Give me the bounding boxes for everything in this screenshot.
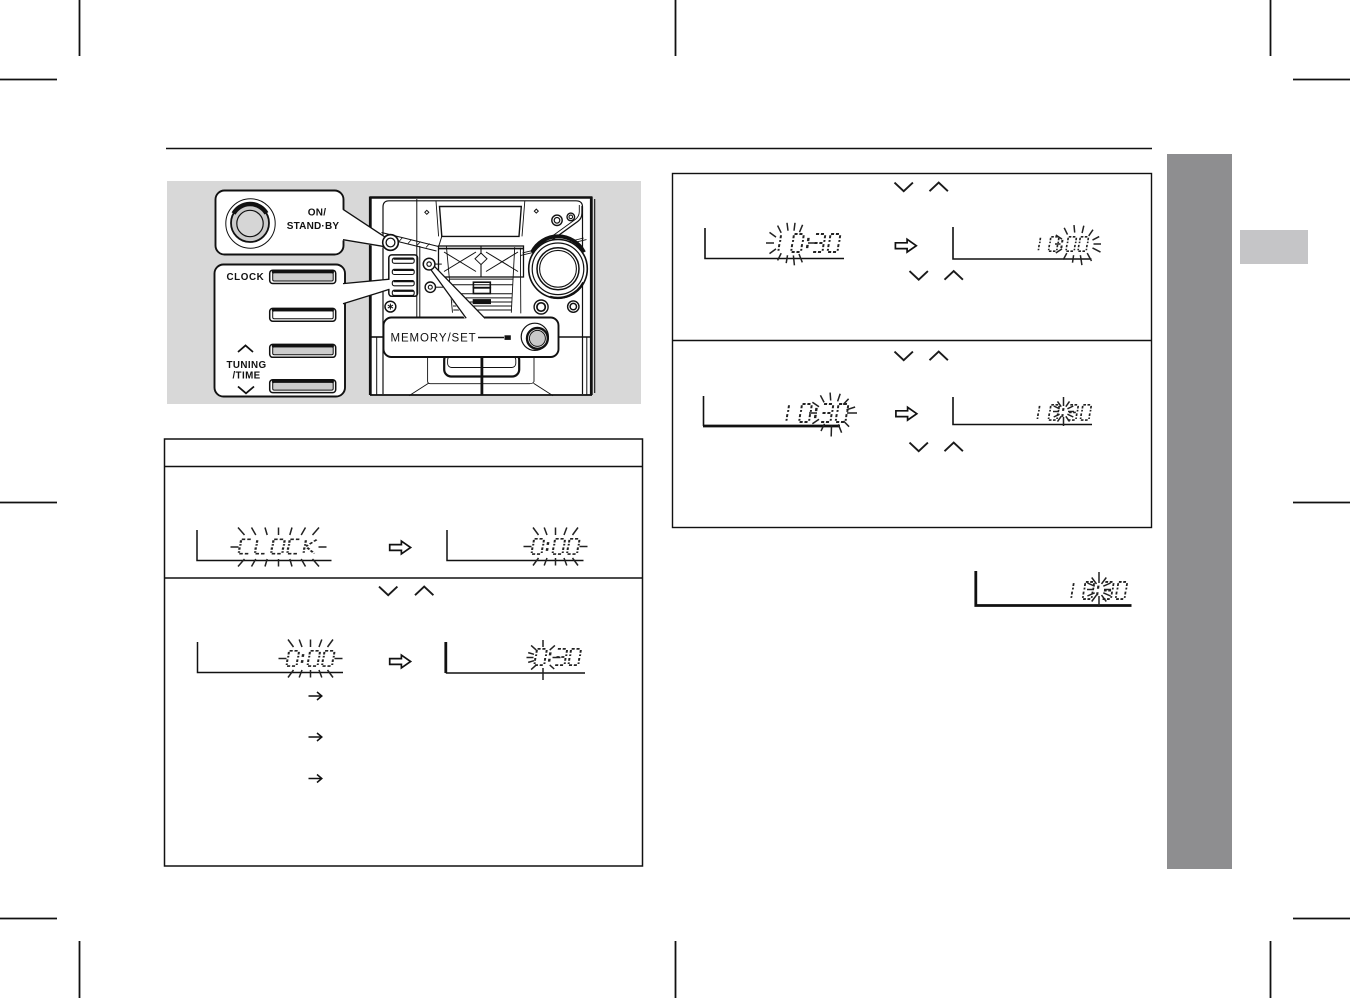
svg-text:STAND·BY: STAND·BY <box>287 221 340 232</box>
svg-text:TUNING: TUNING <box>227 360 267 371</box>
svg-text:ON/: ON/ <box>308 208 326 219</box>
svg-text:CLOCK: CLOCK <box>227 272 265 283</box>
svg-text:/TIME: /TIME <box>232 371 260 382</box>
svg-text:MEMORY/SET: MEMORY/SET <box>391 332 477 344</box>
